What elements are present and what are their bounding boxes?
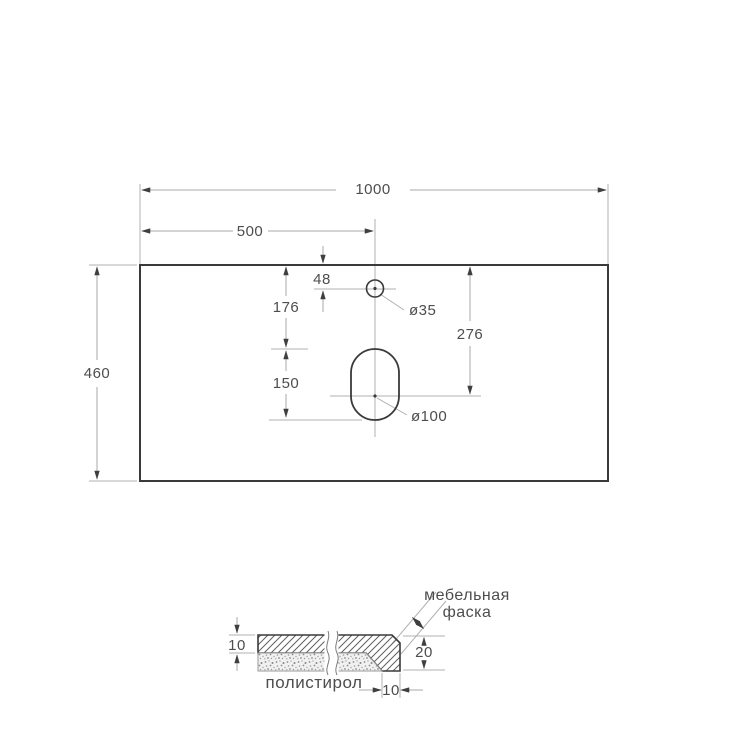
- leader-faucet-diameter: [380, 294, 404, 310]
- drain-arc-center-dot: [373, 394, 376, 397]
- countertop-drawing: 1000 500 460 48 176 150 276 ø35 ø100: [0, 0, 750, 750]
- dim-center-offset-label: 500: [237, 223, 264, 240]
- chamfer-label-line1: мебельная: [424, 587, 510, 604]
- dim-drain-diameter-label: ø100: [411, 408, 447, 425]
- dim-overall-width-label: 1000: [355, 181, 390, 198]
- dim-faucet-offset-label: 48: [313, 271, 331, 288]
- dim-faucet-diameter-label: ø35: [409, 302, 436, 319]
- section-filler-layer: [258, 653, 382, 671]
- dim-edge-height-label: 20: [415, 644, 433, 661]
- dim-drain-top-offset-label: 176: [273, 299, 300, 316]
- faucet-hole-center-dot: [373, 287, 376, 290]
- chamfer-arrow-lower: [418, 623, 424, 629]
- section-view: 10 20 10 полистирол мебельная фаска: [228, 587, 510, 699]
- chamfer-label-line2: фаска: [443, 604, 492, 621]
- extension-lines: [89, 184, 608, 481]
- dim-drain-slot-length-label: 150: [273, 375, 300, 392]
- top-view: 1000 500 460 48 176 150 276 ø35 ø100: [84, 181, 608, 481]
- chamfer-arrow-upper: [413, 618, 419, 624]
- dim-top-thickness-label: 10: [228, 637, 246, 654]
- filler-material-label: полистирол: [266, 673, 363, 692]
- dim-drain-center-offset-label: 276: [457, 326, 484, 343]
- dimension-lines: [97, 190, 606, 479]
- dim-edge-width-label: 10: [382, 682, 400, 699]
- technical-drawing-canvas: 1000 500 460 48 176 150 276 ø35 ø100: [0, 0, 750, 750]
- dim-depth-label: 460: [84, 365, 111, 382]
